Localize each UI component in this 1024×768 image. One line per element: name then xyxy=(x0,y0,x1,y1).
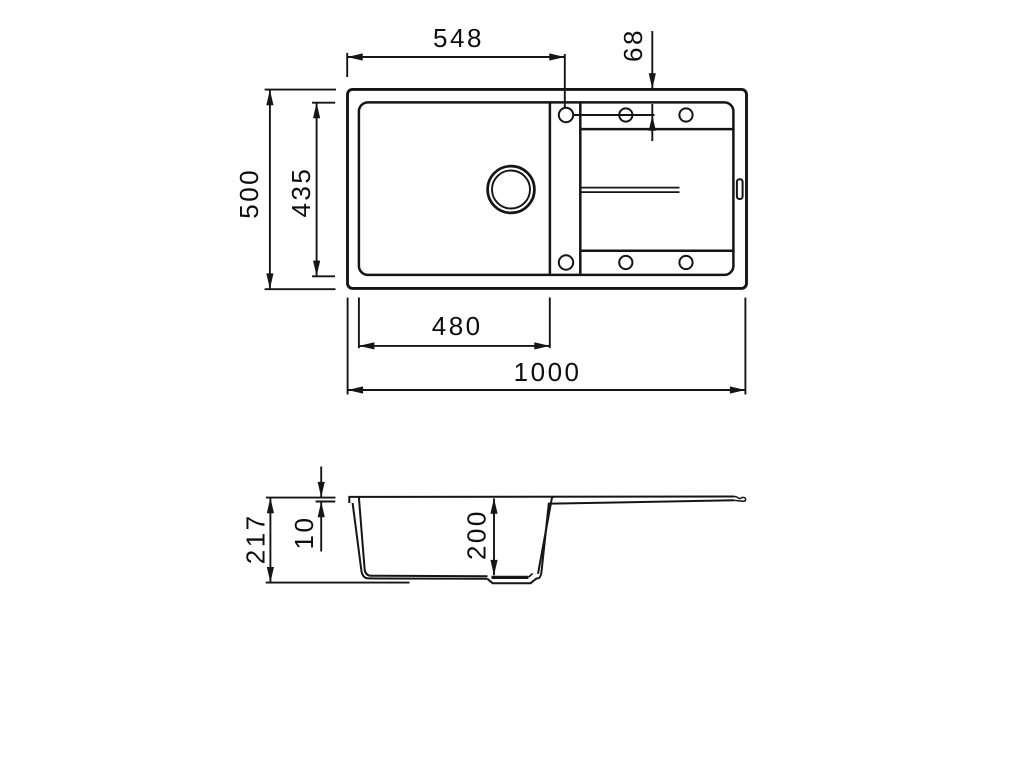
svg-text:200: 200 xyxy=(461,509,491,560)
svg-text:548: 548 xyxy=(433,23,484,53)
svg-text:480: 480 xyxy=(432,311,483,341)
svg-text:68: 68 xyxy=(618,28,648,62)
svg-text:435: 435 xyxy=(286,167,316,218)
svg-text:500: 500 xyxy=(234,168,264,219)
svg-text:217: 217 xyxy=(240,513,270,564)
svg-text:10: 10 xyxy=(289,516,319,550)
svg-text:1000: 1000 xyxy=(514,357,582,387)
